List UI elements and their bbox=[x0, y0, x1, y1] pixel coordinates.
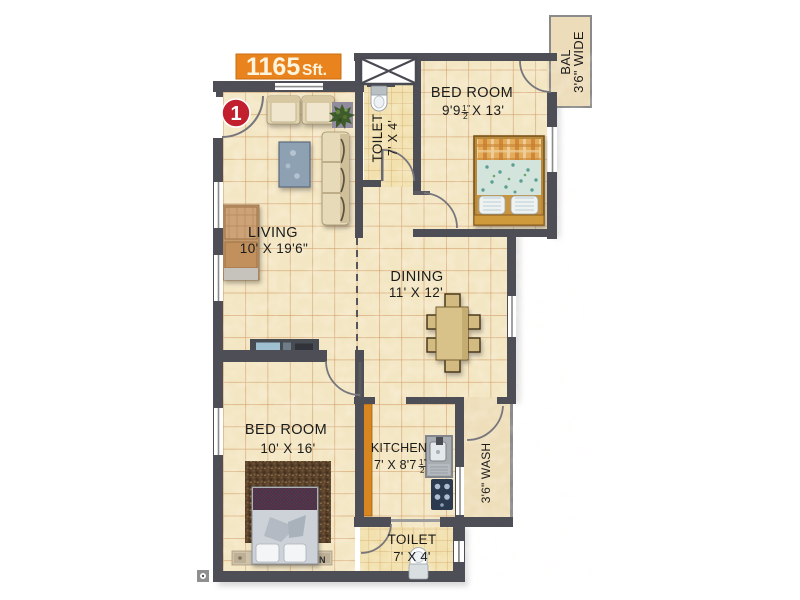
svg-text:1165: 1165 bbox=[246, 53, 300, 81]
svg-text:BED ROOM: BED ROOM bbox=[245, 422, 327, 438]
svg-text:N: N bbox=[319, 555, 326, 565]
svg-text:BED ROOM: BED ROOM bbox=[431, 85, 513, 101]
svg-text:2: 2 bbox=[420, 466, 425, 475]
svg-text:7' X 4': 7' X 4' bbox=[393, 549, 430, 564]
svg-text:10' X 16': 10' X 16' bbox=[260, 441, 315, 456]
svg-text:9'9: 9'9 bbox=[442, 103, 461, 118]
svg-text:Sft.: Sft. bbox=[302, 62, 327, 79]
svg-text:X 13': X 13' bbox=[472, 103, 504, 118]
svg-text:7' X 8'7: 7' X 8'7 bbox=[374, 458, 417, 472]
svg-text:DINING: DINING bbox=[390, 269, 443, 285]
svg-text:3'6" WASH: 3'6" WASH bbox=[479, 443, 493, 504]
svg-text:11' X 12': 11' X 12' bbox=[389, 285, 443, 300]
svg-text:TOILET: TOILET bbox=[388, 532, 437, 547]
svg-text:10' X 19'6": 10' X 19'6" bbox=[240, 241, 308, 256]
svg-text:LIVING: LIVING bbox=[248, 225, 298, 241]
svg-text:3'6" WIDE: 3'6" WIDE bbox=[571, 31, 586, 93]
svg-text:KITCHEN: KITCHEN bbox=[371, 441, 427, 455]
svg-text:1: 1 bbox=[230, 103, 241, 125]
svg-text:7' X 4': 7' X 4' bbox=[386, 120, 400, 156]
svg-text:TOILET: TOILET bbox=[370, 114, 385, 163]
